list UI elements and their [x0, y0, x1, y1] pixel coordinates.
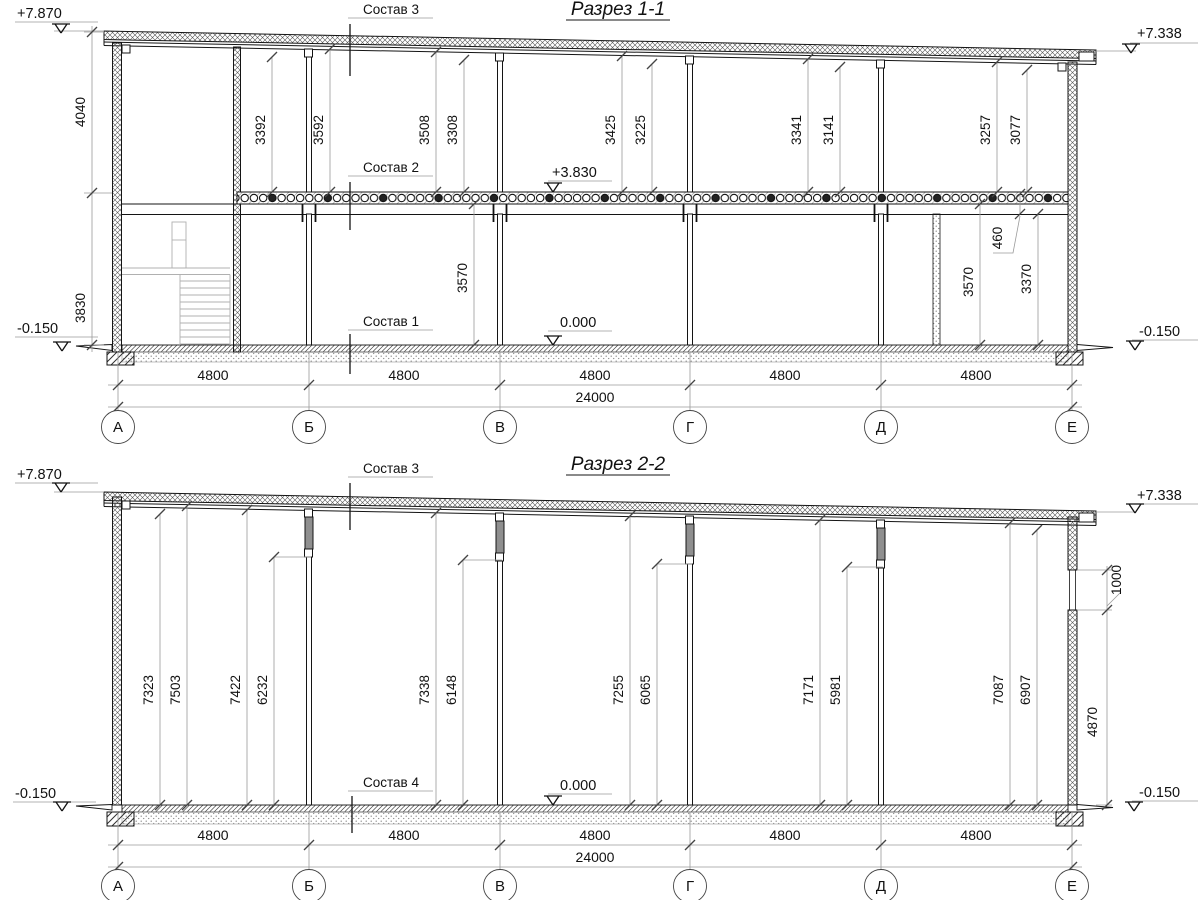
s2-bay-dim: 6148: [444, 675, 459, 705]
s2-elev-bottom-left: -0.150: [15, 786, 56, 802]
s2-wall-E: [1068, 517, 1077, 805]
s2-bay-dim: 7503: [168, 675, 183, 705]
s2-roof: [104, 492, 1096, 526]
s2-elev-top-left: +7.870: [17, 467, 62, 483]
s1-left-dims: 4040 3830: [73, 26, 112, 352]
s1-elev-floor: 0.000: [560, 315, 596, 331]
s2-bay-dims: 7323 7503 7422 6232 7338 6148 7255 6065 …: [141, 501, 1042, 810]
s1-bay-dim: 3425: [603, 115, 618, 145]
s2-axis-label: Е: [1067, 878, 1077, 895]
s2-bay-dim: 7171: [801, 675, 816, 705]
s2-footing-right: [1056, 812, 1083, 826]
s2-wall-A-cap: [122, 501, 130, 509]
s1-bay-dim: 3225: [633, 115, 648, 145]
s2-label-sostav3: Состав 3: [363, 461, 419, 476]
s2-span-dim: 4800: [197, 827, 228, 843]
s1-span-dim: 4800: [769, 367, 800, 383]
s2-wall-A: [113, 497, 122, 805]
s2-ground: [76, 805, 1113, 827]
s1-grade-right: [1077, 345, 1113, 351]
s1-total-dim: 24000: [576, 389, 615, 405]
s2-label-sostav4: Состав 4: [363, 775, 419, 790]
s1-floor-slab: [122, 192, 1068, 222]
s1-axis-label: Д: [876, 419, 886, 436]
s1-elev-bottom-left: -0.150: [17, 321, 58, 337]
s2-bay-dim: 7087: [991, 675, 1006, 705]
s1-floor-dims: 3570 3570 460 3370: [455, 189, 1043, 350]
s2-layer-labels: Состав 3 Состав 4: [348, 461, 433, 833]
s1-roof-edge-cap: [1079, 52, 1094, 61]
s1-dim-460: 460: [990, 227, 1005, 250]
s2-bay-dim: 7422: [228, 675, 243, 705]
s1-elev-top-left: +7.870: [17, 6, 62, 22]
s1-footing-right: [1056, 352, 1083, 365]
s1-axis-label: Г: [686, 419, 694, 436]
s1-wall-E: [1068, 62, 1077, 352]
s1-axis-bubbles: А Б В Г Д Е: [102, 411, 1089, 444]
s1-bay-dim: 3257: [978, 115, 993, 145]
s1-axis-label: Б: [304, 419, 314, 436]
s2-dim-4870: 4870: [1085, 707, 1100, 737]
s1-span-dim: 4800: [388, 367, 419, 383]
drawing-sheet: Разрез 1-1: [0, 0, 1200, 900]
s1-span-dim: 4800: [579, 367, 610, 383]
s1-elev-slab: +3.830: [552, 165, 597, 181]
s2-axis-bubbles: А Б В Г Д Е: [102, 870, 1089, 900]
s2-span-dim: 4800: [579, 827, 610, 843]
s1-layer-labels: Состав 3 Состав 2 Состав 1: [348, 2, 433, 374]
section-2: Разрез 2-2 Состав 3 Состав 4: [13, 454, 1198, 900]
s2-total-dim: 24000: [576, 849, 615, 865]
s2-bay-dim: 7338: [417, 675, 432, 705]
s2-right-dims: 1000 4870: [1077, 565, 1124, 810]
s1-elevation-marks: +7.870 -0.150 +7.338 -0.150 +3.830 0.000: [15, 6, 1198, 351]
s1-bay-dim: 3592: [311, 115, 326, 145]
s2-axis-label: Г: [686, 878, 694, 895]
s1-staircase: [122, 222, 230, 345]
s1-axis-label: В: [495, 419, 505, 436]
s2-elev-bottom-right: -0.150: [1139, 785, 1180, 801]
s2-bay-dim: 5981: [828, 675, 843, 705]
s2-elev-top-right: +7.338: [1137, 488, 1182, 504]
s2-axis-label: Д: [876, 878, 886, 895]
s1-bay-dim: 3341: [789, 115, 804, 145]
s1-elev-top-right: +7.338: [1137, 26, 1182, 42]
s1-bay-dim: 3508: [417, 115, 432, 145]
s1-elev-bottom-right: -0.150: [1139, 324, 1180, 340]
s2-bay-dim: 7323: [141, 675, 156, 705]
s2-span-dim: 4800: [769, 827, 800, 843]
sections-drawing: Разрез 1-1: [0, 0, 1200, 900]
s1-span-dim: 4800: [960, 367, 991, 383]
s2-window: [1068, 570, 1077, 610]
s2-elevation-marks: +7.870 -0.150 +7.338 -0.150 0.000: [13, 467, 1198, 811]
s1-dim-3570-right: 3570: [961, 267, 976, 297]
s1-bay-dim: 3308: [445, 115, 460, 145]
s2-bay-dim: 6232: [255, 675, 270, 705]
s2-bay-dim: 7255: [611, 675, 626, 705]
section-1-title: Разрез 1-1: [571, 0, 665, 20]
s2-axis-label: В: [495, 878, 505, 895]
s2-dim-1000: 1000: [1109, 565, 1124, 595]
s1-label-sostav3: Состав 3: [363, 2, 419, 17]
s2-grade-left: [76, 805, 112, 811]
s2-elev-floor: 0.000: [560, 778, 596, 794]
s1-label-sostav1: Состав 1: [363, 314, 419, 329]
section-1: Разрез 1-1: [15, 0, 1198, 444]
s1-dim-3370: 3370: [1019, 264, 1034, 294]
s2-roof-edge-cap: [1079, 513, 1094, 522]
s1-ground: [76, 345, 1113, 366]
s1-axis-label: А: [113, 419, 123, 436]
s1-label-sostav2: Состав 2: [363, 160, 419, 175]
s2-bay-dim: 6907: [1018, 675, 1033, 705]
s1-span-dim: 4800: [197, 367, 228, 383]
s1-wall-A: [113, 43, 122, 352]
s1-bay-dim: 3141: [821, 115, 836, 145]
s2-bay-dim: 6065: [638, 675, 653, 705]
s2-span-dim: 4800: [960, 827, 991, 843]
s2-footing-left: [107, 812, 134, 826]
s2-columns: [305, 509, 886, 805]
s1-dim-4040: 4040: [73, 97, 88, 127]
s1-bay-dim: 3392: [253, 115, 268, 145]
s1-footing-left: [107, 352, 134, 365]
s1-bay-dim: 3077: [1008, 115, 1023, 145]
section-2-title: Разрез 2-2: [571, 454, 666, 475]
s1-partition: [933, 214, 940, 345]
s1-axis-label: Е: [1067, 419, 1077, 436]
s1-dim-3570-mid: 3570: [455, 263, 470, 293]
s2-span-dim: 4800: [388, 827, 419, 843]
s2-axis-label: А: [113, 878, 123, 895]
s1-roof: [104, 31, 1096, 65]
s2-axis-label: Б: [304, 878, 314, 895]
s1-dim-3830: 3830: [73, 293, 88, 323]
